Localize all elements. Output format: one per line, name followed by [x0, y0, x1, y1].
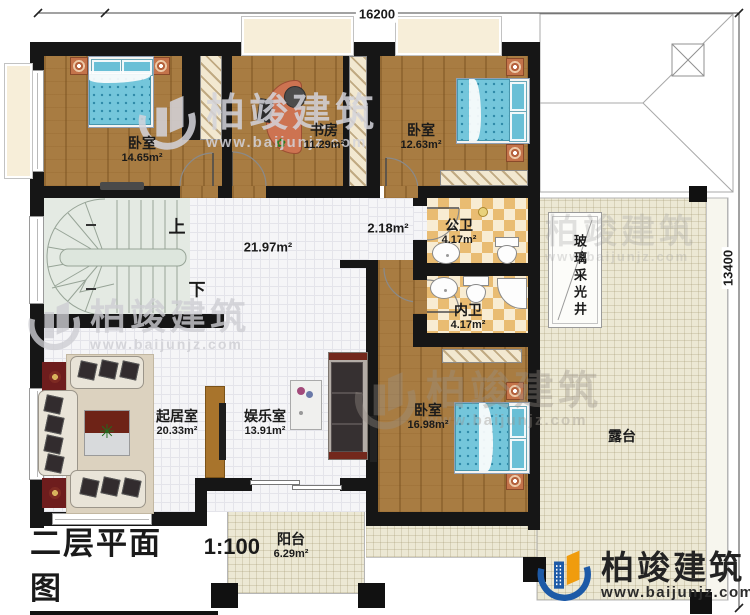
- nightstand: [506, 382, 524, 400]
- bed: [454, 402, 530, 474]
- wall-segment: [366, 512, 540, 526]
- nightstand: [506, 472, 524, 490]
- bed: [88, 56, 154, 128]
- bed: [456, 78, 530, 144]
- room-label-ensuite-bathroom: 内卫4.17m²: [451, 303, 486, 331]
- closet: [349, 56, 367, 196]
- red-mat: [42, 478, 68, 508]
- nightstand: [70, 57, 88, 75]
- wall-tv-icon: [370, 416, 377, 462]
- ceiling-lamp-icon: [478, 207, 488, 217]
- table-plant-icon: ✳: [99, 422, 115, 443]
- dresser: [100, 182, 144, 190]
- wall-segment: [413, 263, 528, 276]
- plan-title: 二层平面图: [30, 518, 194, 608]
- door-opening-patch: [413, 206, 427, 240]
- nightstand: [506, 58, 524, 76]
- window: [29, 216, 44, 304]
- column: [689, 186, 707, 202]
- room-label-balcony: 阳台6.29m²: [274, 532, 309, 560]
- brand-name: 柏竣建筑: [601, 551, 750, 584]
- sofa: [70, 470, 146, 508]
- coffee-table: ✳: [84, 410, 130, 456]
- wall-segment: [218, 186, 232, 198]
- dark-sofa: [328, 352, 368, 460]
- door-opening-patch: [232, 186, 266, 198]
- room-label-entertainment: 娱乐室13.91m²: [244, 409, 286, 437]
- floor-plan: ✿ ✳: [0, 0, 750, 615]
- nightstand: [152, 57, 170, 75]
- brand-logo: 柏竣建筑 www.baijunjz.com: [535, 546, 750, 606]
- desk-chair: [284, 86, 306, 108]
- wall-segment: [207, 478, 252, 491]
- room-label-public-bathroom: 公卫4.17m²: [442, 218, 477, 246]
- stairs-up-label: 上: [169, 217, 186, 236]
- bay-window: [5, 64, 32, 178]
- door-opening-patch: [413, 280, 427, 314]
- wall-segment: [266, 186, 380, 198]
- closet: [442, 349, 522, 363]
- nightstand: [506, 144, 524, 162]
- room-label-study: 书房11.29m²: [304, 123, 344, 151]
- tv-screen: [219, 403, 226, 460]
- wall-segment: [340, 478, 366, 491]
- room-label-terrace: 露台: [608, 429, 636, 445]
- brand-logo-icon: [535, 546, 593, 606]
- dimension-right: 13400: [722, 247, 737, 289]
- wall-segment: [367, 56, 380, 198]
- desk-plant-icon: ✿: [276, 136, 286, 150]
- title-block: 二层平面图 1:100 本层建筑面积: 142.11m² 层高: 3.3m: [30, 518, 260, 615]
- title-underline: [30, 611, 218, 615]
- stairs-down-label: 下: [189, 280, 206, 299]
- stairs-linework: [47, 199, 186, 315]
- bay-window: [242, 17, 353, 55]
- terrace-outline: [537, 198, 728, 600]
- brand-website: www.baijunjz.com: [601, 584, 750, 602]
- wall-segment: [222, 56, 232, 198]
- room-label-bedroom-top-left: 卧室14.65m²: [122, 136, 163, 164]
- plan-scale: 1:100: [204, 534, 260, 560]
- wall-segment: [413, 333, 540, 347]
- door-opening-patch: [384, 186, 418, 198]
- dimension-top: 16200: [356, 8, 398, 23]
- room-label-living: 起居室20.33m²: [156, 409, 198, 437]
- room-label-bedroom-top-right: 卧室12.63m²: [401, 123, 442, 151]
- closet: [440, 170, 528, 186]
- bay-window: [396, 17, 501, 55]
- room-label-bedroom-bottom: 卧室16.98m²: [408, 403, 449, 431]
- wall-segment: [30, 314, 224, 328]
- side-table-art: [290, 380, 322, 430]
- roof-plan: [540, 14, 733, 192]
- area-label-hall: 21.97m²: [244, 241, 292, 256]
- closet: [200, 50, 222, 140]
- door-opening-patch: [180, 186, 218, 198]
- room-label-lightwell: 玻璃采光井: [570, 234, 589, 319]
- sofa: [38, 390, 78, 476]
- bathroom-sink: [430, 277, 458, 299]
- sofa: [70, 356, 144, 389]
- column: [358, 583, 385, 608]
- area-label-passage: 2.18m²: [367, 222, 408, 237]
- sliding-door-panel: [292, 485, 342, 490]
- red-mat: [42, 362, 68, 392]
- wall-segment: [418, 186, 540, 198]
- wall-segment: [182, 56, 200, 140]
